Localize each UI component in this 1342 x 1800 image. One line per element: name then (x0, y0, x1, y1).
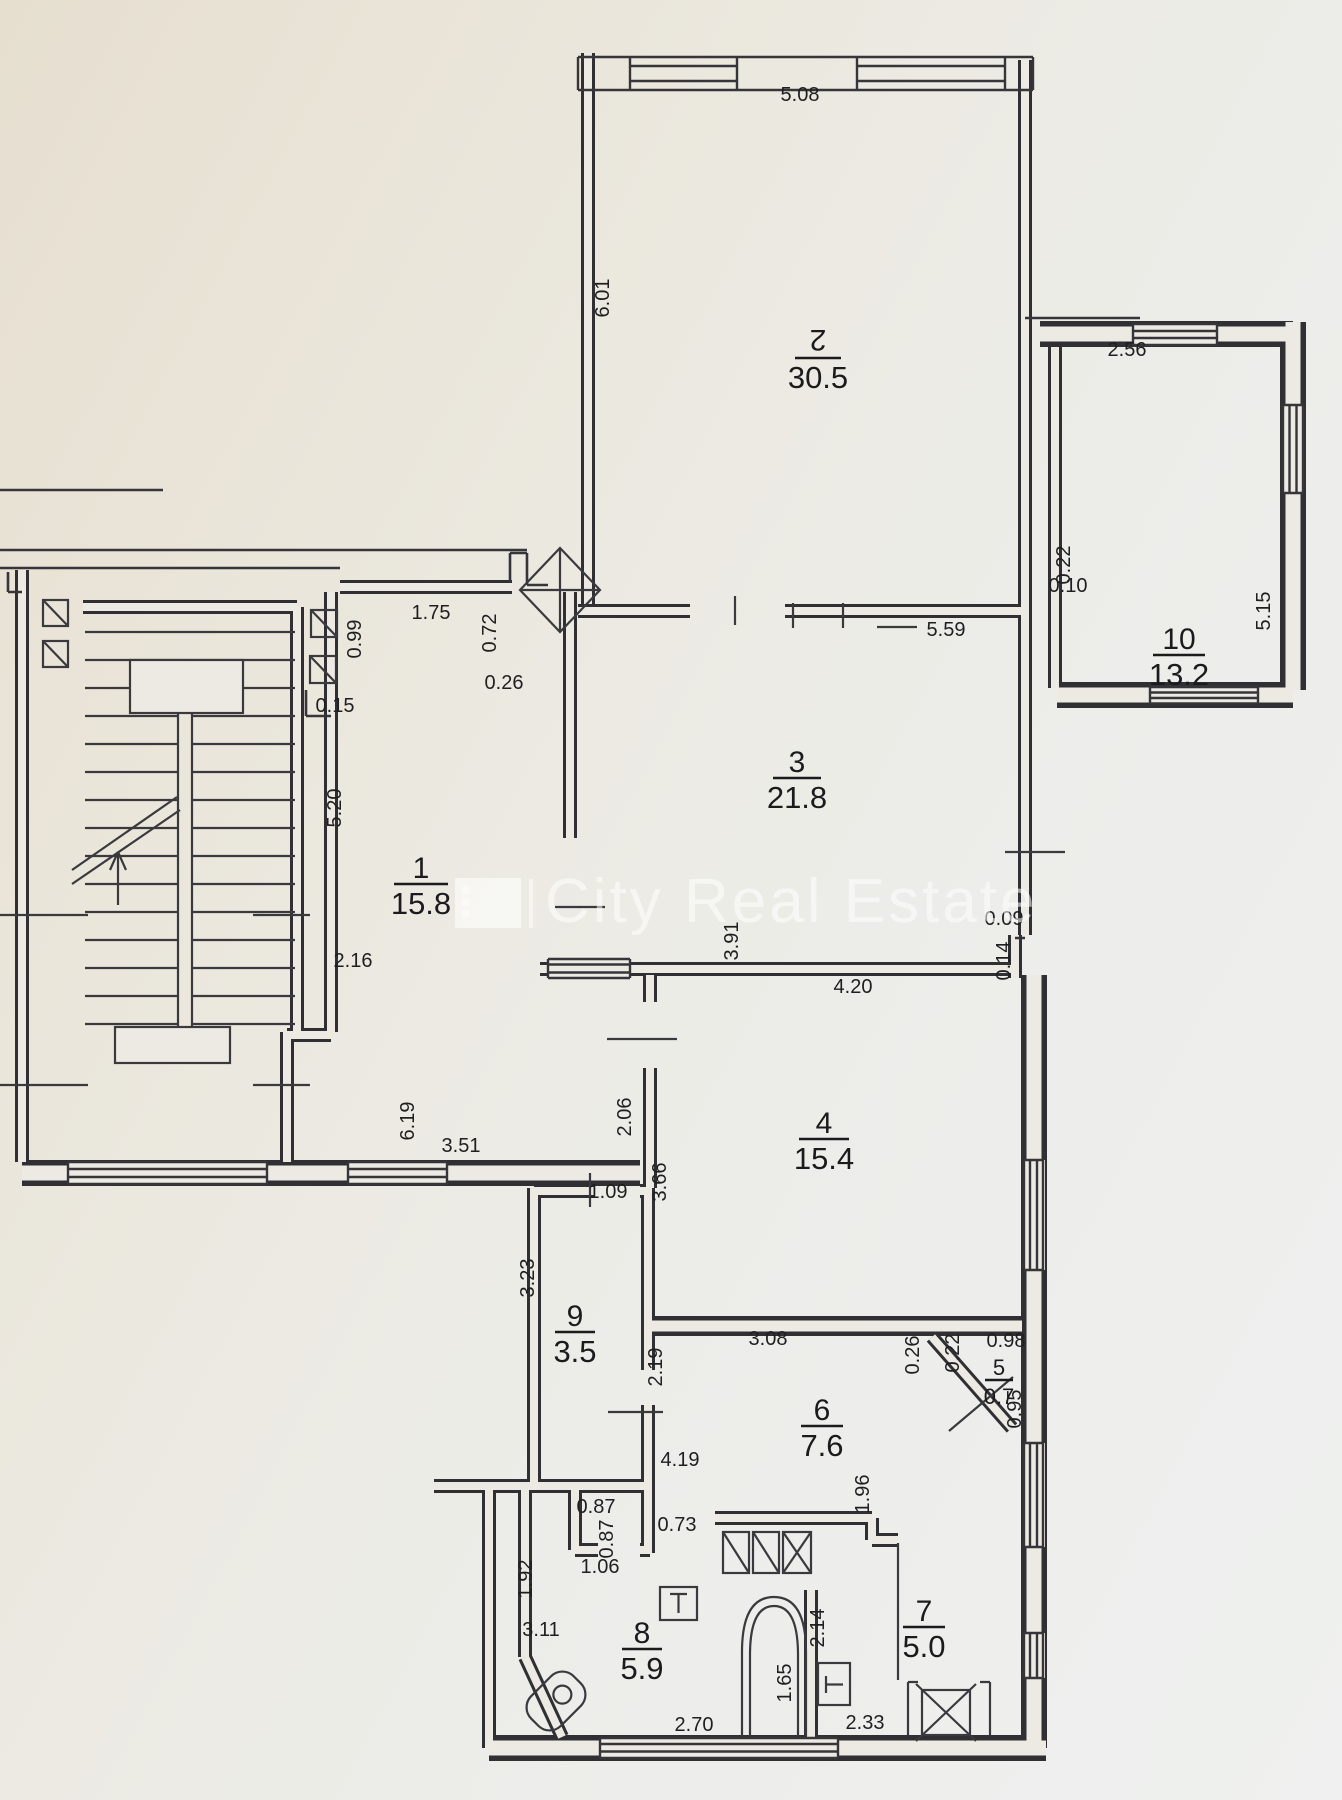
room-area: 13.2 (1149, 657, 1209, 692)
room-label-6: 67.6 (800, 1394, 843, 1463)
room-number: 6 (814, 1394, 831, 1427)
dimension-label: 2.14 (807, 1609, 829, 1648)
stair-direction-line (72, 797, 180, 884)
room-number: 3 (789, 746, 806, 779)
stair-arrow-icon (110, 852, 126, 905)
room-area: 3.5 (553, 1334, 596, 1369)
room-label-3: 321.8 (767, 746, 827, 815)
sink-fixture (660, 1587, 697, 1620)
dimension-label: 5.59 (927, 619, 966, 641)
dimension-label: 5.08 (781, 84, 820, 106)
dimension-label: 0.87 (577, 1496, 616, 1518)
room-number: 8 (634, 1617, 651, 1650)
dimension-label: 2.06 (614, 1098, 636, 1137)
dimension-label: 6.01 (592, 279, 614, 318)
dimension-label: 2.19 (645, 1348, 667, 1387)
room-label-7: 75.0 (902, 1595, 945, 1664)
dimension-label: 1.92 (515, 1560, 537, 1599)
floor-plan: 5.086.012.560.220.105.155.590.991.750.72… (0, 0, 1342, 1800)
watermark: City Real Estate (455, 867, 1038, 936)
kitchen-counter-icon (723, 1532, 811, 1573)
room-area: 7.6 (800, 1428, 843, 1463)
dimension-label: 3.11 (522, 1619, 559, 1641)
room-area: 30.5 (788, 360, 848, 395)
dimension-label: 0.72 (479, 614, 501, 653)
dimension-label: 5.20 (324, 789, 346, 828)
dimension-label: 0.87 (596, 1520, 618, 1559)
room-label-10: 1013.2 (1149, 623, 1209, 692)
dimension-label: 3.51 (442, 1135, 481, 1157)
room-label-5: 50.7 (984, 1355, 1015, 1409)
room-number: 2 (810, 323, 827, 356)
dimension-label: 3.66 (649, 1163, 671, 1202)
dimension-label: 0.10 (1049, 575, 1088, 597)
dimension-label: 3.08 (749, 1328, 788, 1350)
dimension-label: 0.14 (993, 942, 1015, 981)
dimension-label: 1.96 (852, 1475, 874, 1514)
dimension-label: 0.73 (658, 1514, 697, 1536)
room-number: 7 (916, 1595, 933, 1628)
dimension-label: 1.65 (774, 1664, 796, 1703)
room-label-4: 415.4 (794, 1107, 854, 1176)
kitchen-sink-fixture (818, 1663, 850, 1705)
dimension-label: 5.15 (1253, 592, 1275, 631)
window (68, 323, 1304, 1759)
room-label-1: 115.8 (391, 852, 451, 921)
room-number: 1 (413, 852, 430, 885)
room-area: 15.8 (391, 886, 451, 921)
dimension-label: 2.70 (675, 1714, 714, 1736)
room-area: 21.8 (767, 780, 827, 815)
dimension-label: 0.15 (316, 695, 355, 717)
room-label-2: 230.5 (788, 323, 848, 395)
dimension-label: 4.20 (834, 976, 873, 998)
dimension-label: 2.16 (334, 950, 373, 972)
room-area: 15.4 (794, 1141, 854, 1176)
room-label-8: 85.9 (620, 1617, 663, 1686)
room-area: 5.0 (902, 1629, 945, 1664)
staircase (72, 632, 295, 1063)
room-number: 10 (1162, 623, 1195, 656)
room-number: 4 (816, 1107, 833, 1140)
dimension-label: 0.26 (485, 672, 524, 694)
room-number: 9 (567, 1300, 584, 1333)
dimension-label: 0.99 (344, 620, 366, 659)
room-area: 5.9 (620, 1651, 663, 1686)
dimension-label: 6.19 (397, 1102, 419, 1141)
dimension-label: 1.75 (412, 602, 451, 624)
dimension-label: 0.98 (987, 1330, 1026, 1352)
dimension-label: 3.23 (517, 1259, 539, 1298)
dimension-label: 2.33 (846, 1712, 885, 1734)
watermark-text: City Real Estate (545, 867, 1038, 936)
dimension-label: 1.09 (589, 1181, 628, 1203)
dimension-label: 2.56 (1108, 339, 1147, 361)
dimension-label: 0.26 (902, 1336, 924, 1375)
dimension-label: 1.06 (581, 1556, 620, 1578)
watermark-divider (529, 879, 533, 928)
floor-plan-drawing: 5.086.012.560.220.105.155.590.991.750.72… (0, 0, 1342, 1800)
room-number: 5 (993, 1355, 1005, 1380)
room-area: 0.7 (984, 1384, 1015, 1409)
room-label-9: 93.5 (553, 1300, 596, 1369)
dimension-label: 0.22 (942, 1334, 964, 1373)
dimension-label: 4.19 (661, 1449, 700, 1471)
